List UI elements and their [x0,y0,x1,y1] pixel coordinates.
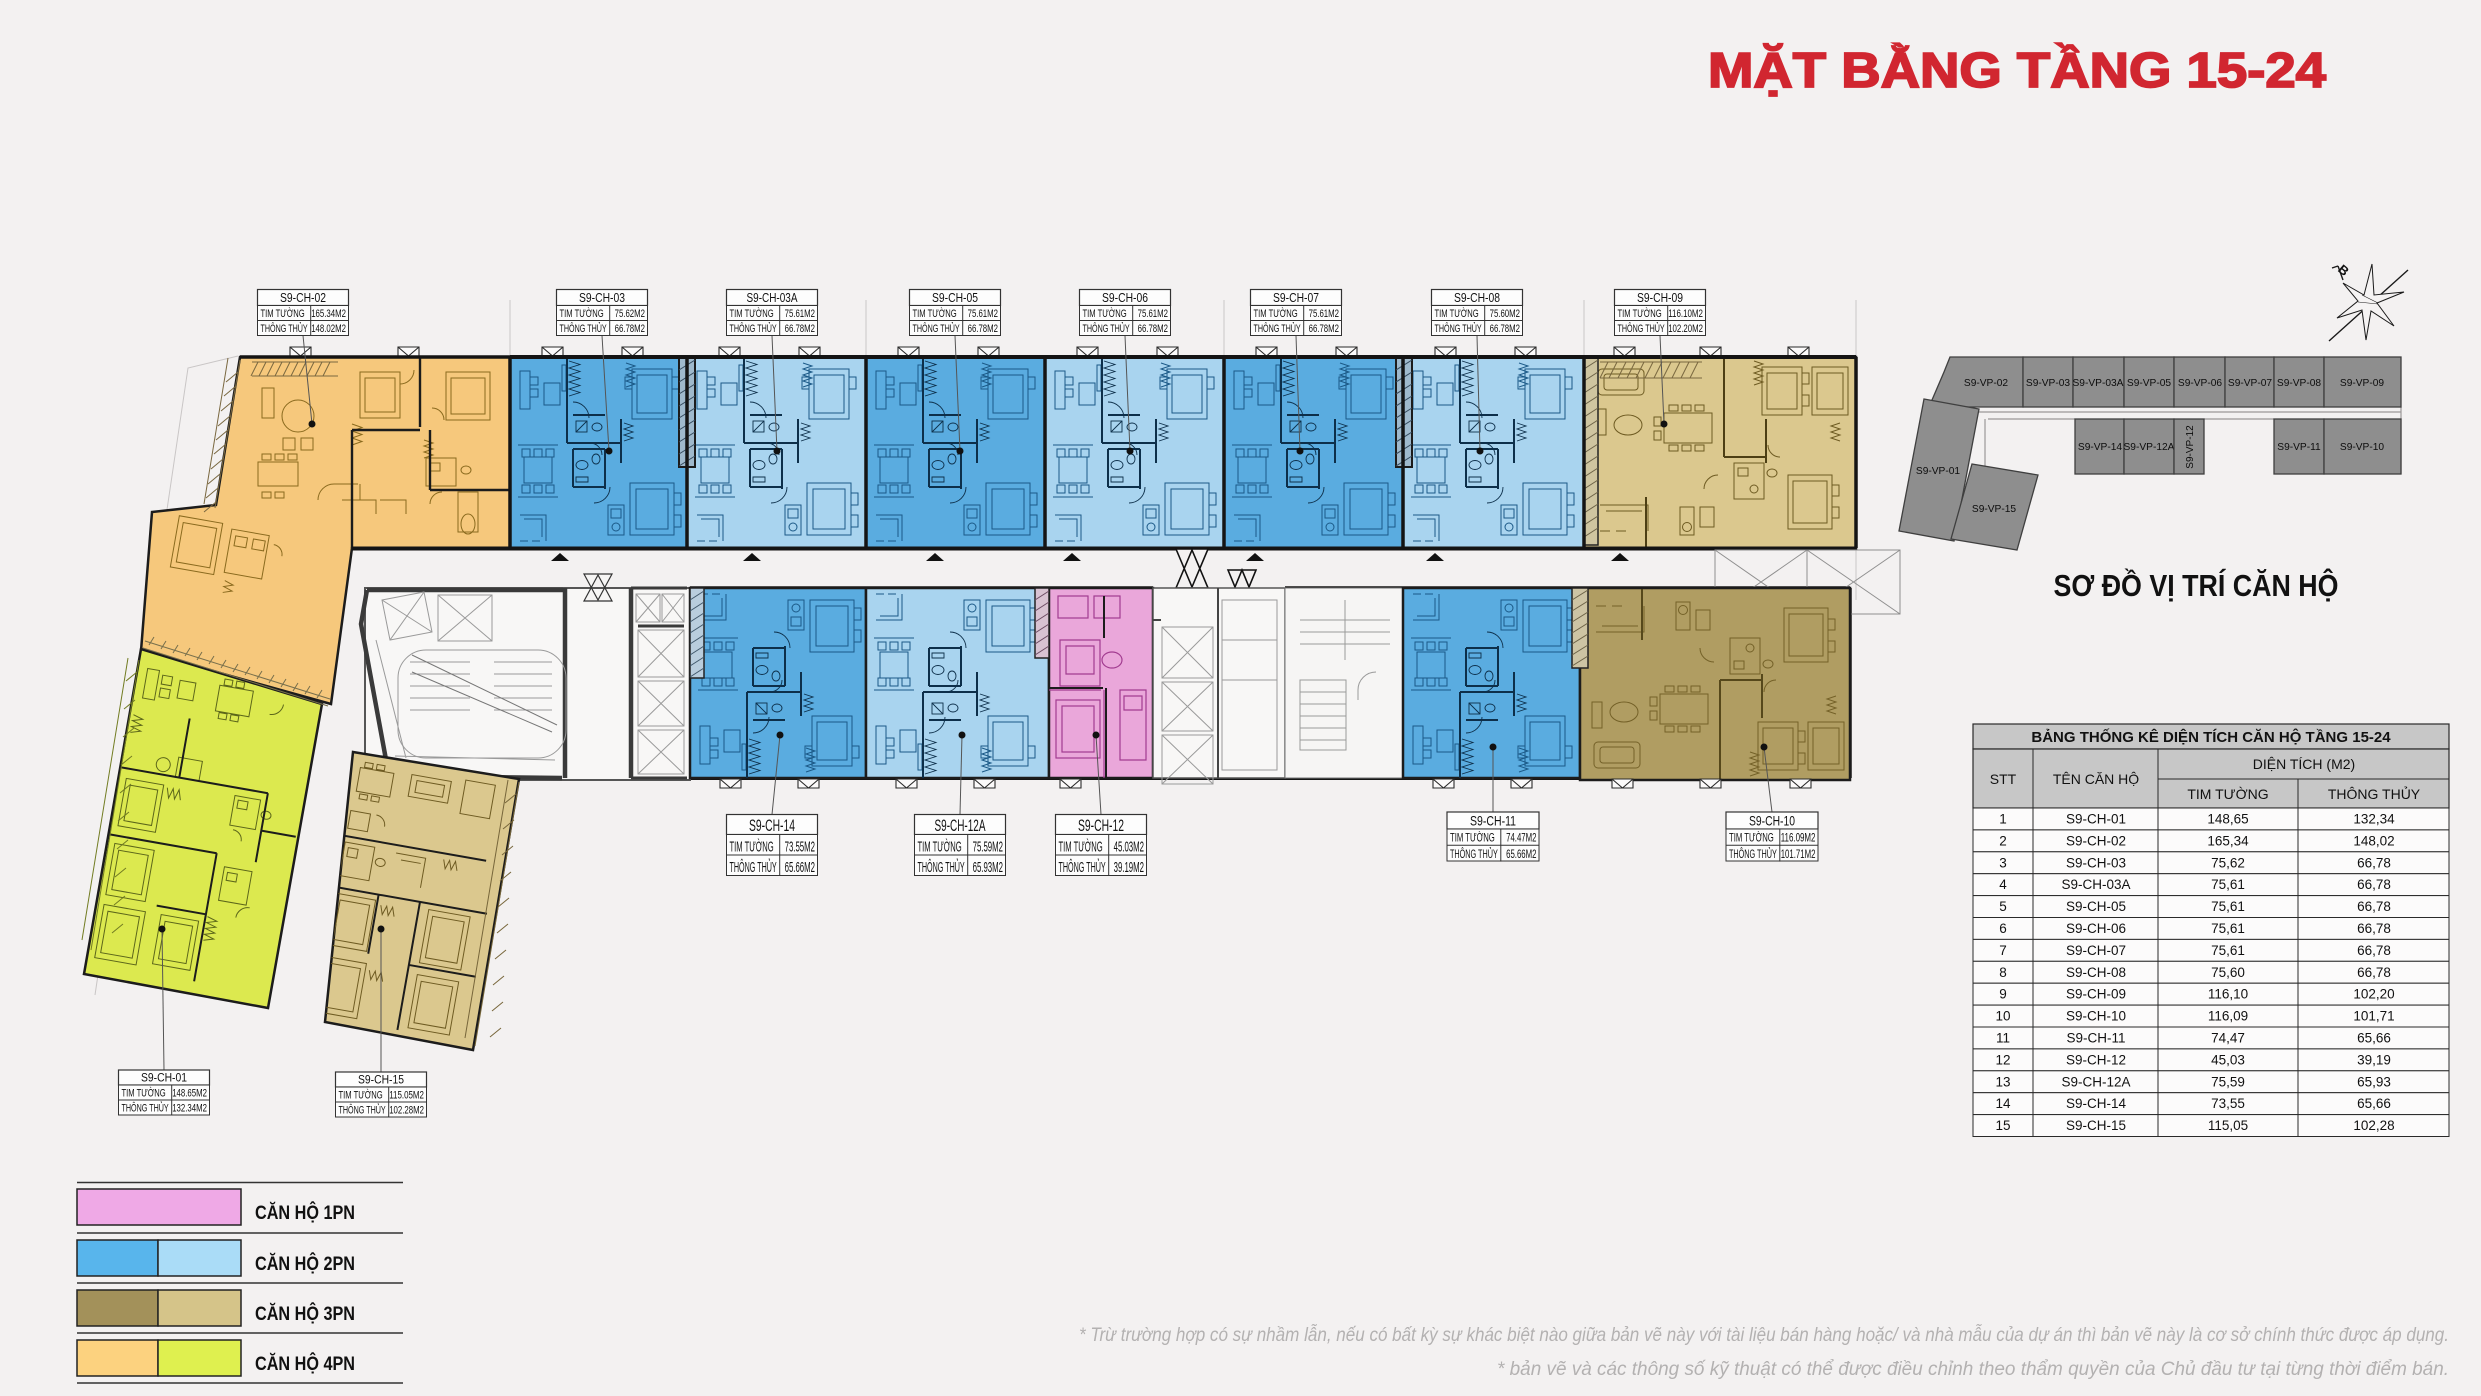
svg-text:* Trừ trường hợp có sự nhầm lẫ: * Trừ trường hợp có sự nhầm lẫn, nếu có … [1079,1325,2449,1346]
svg-text:THÔNG THỦY: THÔNG THỦY [1435,322,1482,335]
svg-text:65.93M2: 65.93M2 [973,860,1003,876]
svg-text:S9-CH-03: S9-CH-03 [579,290,625,305]
svg-text:165,34: 165,34 [2207,833,2249,848]
svg-text:THÔNG THỦY: THÔNG THỦY [2328,785,2421,802]
svg-text:75.62M2: 75.62M2 [615,308,645,320]
svg-text:S9-CH-08: S9-CH-08 [2066,965,2126,980]
svg-text:TIM TƯỜNG: TIM TƯỜNG [1450,832,1495,845]
svg-text:14: 14 [1995,1096,2011,1111]
svg-text:102,28: 102,28 [2353,1118,2394,1133]
svg-text:66,78: 66,78 [2357,855,2391,870]
svg-text:116,09: 116,09 [2208,1009,2248,1024]
svg-text:S9-CH-09: S9-CH-09 [2066,987,2126,1002]
svg-text:S9-CH-07: S9-CH-07 [2066,943,2126,958]
svg-text:TIM TƯỜNG: TIM TƯỜNG [918,838,962,855]
svg-text:S9-CH-06: S9-CH-06 [2066,921,2126,936]
svg-text:75,59: 75,59 [2211,1074,2245,1089]
svg-text:S9-VP-03A: S9-VP-03A [2073,378,2124,389]
svg-text:S9-CH-12: S9-CH-12 [1078,817,1124,835]
svg-text:115.05M2: 115.05M2 [389,1089,424,1101]
svg-text:BẢNG THỐNG KÊ DIỆN TÍCH CĂN HỘ: BẢNG THỐNG KÊ DIỆN TÍCH CĂN HỘ TẦNG 15-2… [2031,728,2391,746]
svg-text:75,61: 75,61 [2211,899,2245,914]
svg-text:S9-VP-03: S9-VP-03 [2026,378,2071,389]
svg-text:66.78M2: 66.78M2 [1490,323,1520,335]
svg-text:132.34M2: 132.34M2 [172,1102,207,1114]
svg-text:12: 12 [1995,1052,2010,1067]
svg-text:TIM TƯỜNG: TIM TƯỜNG [730,307,774,320]
svg-text:116.10M2: 116.10M2 [1668,308,1703,320]
svg-text:S9-VP-12: S9-VP-12 [2185,425,2196,469]
svg-text:S9-CH-15: S9-CH-15 [2066,1118,2126,1133]
svg-text:TIM TƯỜNG: TIM TƯỜNG [2187,786,2268,802]
svg-text:165.34M2: 165.34M2 [311,308,346,320]
svg-text:11: 11 [1996,1031,2010,1046]
svg-text:S9-CH-10: S9-CH-10 [2066,1009,2126,1024]
svg-text:S9-CH-15: S9-CH-15 [358,1073,404,1087]
svg-text:132,34: 132,34 [2353,812,2395,827]
svg-text:S9-VP-12A: S9-VP-12A [2124,442,2175,453]
svg-text:THÔNG THỦY: THÔNG THỦY [1729,848,1777,861]
svg-text:THÔNG THỦY: THÔNG THỦY [261,322,308,335]
svg-text:S9-VP-08: S9-VP-08 [2277,378,2322,389]
svg-text:S9-CH-02: S9-CH-02 [280,290,326,305]
svg-text:148.02M2: 148.02M2 [311,323,346,335]
svg-text:116,10: 116,10 [2208,987,2248,1002]
svg-text:66.78M2: 66.78M2 [785,323,815,335]
svg-text:THÔNG THỦY: THÔNG THỦY [1618,322,1665,335]
svg-text:66,78: 66,78 [2357,965,2391,980]
svg-text:S9-CH-02: S9-CH-02 [2066,833,2126,848]
svg-text:102.20M2: 102.20M2 [1668,323,1703,335]
svg-text:THÔNG THỦY: THÔNG THỦY [1059,858,1106,876]
svg-text:9: 9 [1999,987,2007,1002]
svg-text:75.59M2: 75.59M2 [973,839,1003,855]
svg-text:TIM TƯỜNG: TIM TƯỜNG [261,307,305,320]
svg-text:S9-CH-11: S9-CH-11 [2066,1031,2125,1046]
svg-text:102.28M2: 102.28M2 [389,1104,424,1116]
svg-text:S9-VP-07: S9-VP-07 [2228,378,2273,389]
svg-text:66.78M2: 66.78M2 [615,323,645,335]
svg-text:S9-VP-11: S9-VP-11 [2277,442,2321,453]
svg-text:75,61: 75,61 [2211,921,2245,936]
svg-text:101.71M2: 101.71M2 [1781,848,1816,861]
svg-text:75,60: 75,60 [2211,965,2245,980]
svg-text:CĂN HỘ 1PN: CĂN HỘ 1PN [255,1200,355,1224]
svg-text:S9-CH-06: S9-CH-06 [1102,290,1148,305]
svg-text:THÔNG THỦY: THÔNG THỦY [560,322,607,335]
svg-text:CĂN HỘ 4PN: CĂN HỘ 4PN [255,1351,355,1375]
svg-text:* bản vẽ và các thông số kỹ th: * bản vẽ và các thông số kỹ thuật có thể… [1497,1359,2449,1380]
svg-text:S9-CH-14: S9-CH-14 [749,817,795,835]
svg-text:CĂN HỘ 2PN: CĂN HỘ 2PN [255,1251,355,1275]
svg-text:S9-VP-14: S9-VP-14 [2078,442,2123,453]
svg-text:75.60M2: 75.60M2 [1490,308,1520,320]
svg-text:75,61: 75,61 [2211,877,2245,892]
svg-text:73.55M2: 73.55M2 [785,839,815,855]
svg-text:148,65: 148,65 [2207,812,2248,827]
svg-text:S9-VP-02: S9-VP-02 [1964,378,2009,389]
svg-text:7: 7 [1999,943,2007,958]
svg-text:S9-CH-10: S9-CH-10 [1749,814,1795,829]
svg-text:66.78M2: 66.78M2 [968,323,998,335]
svg-text:74,47: 74,47 [2211,1031,2245,1046]
svg-text:THÔNG THỦY: THÔNG THỦY [339,1103,386,1116]
svg-text:75,61: 75,61 [2211,943,2245,958]
svg-text:TIM TƯỜNG: TIM TƯỜNG [1729,832,1774,845]
svg-text:S9-VP-09: S9-VP-09 [2340,378,2385,389]
svg-text:S9-CH-01: S9-CH-01 [141,1071,187,1085]
svg-text:66,78: 66,78 [2357,943,2391,958]
svg-text:66,78: 66,78 [2357,877,2391,892]
svg-text:1: 1 [1999,812,2007,827]
svg-text:THÔNG THỦY: THÔNG THỦY [730,322,777,335]
svg-text:65.66M2: 65.66M2 [785,860,815,876]
svg-text:4: 4 [1999,877,2007,892]
svg-text:65,93: 65,93 [2357,1074,2391,1089]
svg-text:S9-CH-05: S9-CH-05 [932,290,978,305]
svg-text:S9-VP-06: S9-VP-06 [2178,378,2223,389]
svg-text:S9-CH-12: S9-CH-12 [2066,1052,2126,1067]
svg-text:MẶT BẰNG TẦNG 15-24: MẶT BẰNG TẦNG 15-24 [1708,42,2327,98]
svg-text:65,66: 65,66 [2357,1096,2391,1111]
svg-text:101,71: 101,71 [2353,1009,2394,1024]
svg-text:TIM TƯỜNG: TIM TƯỜNG [339,1088,383,1101]
svg-text:S9-CH-03: S9-CH-03 [2066,855,2126,870]
svg-text:3: 3 [1999,855,2007,870]
svg-text:TIM TƯỜNG: TIM TƯỜNG [1254,307,1298,320]
svg-text:75.61M2: 75.61M2 [785,308,815,320]
svg-text:65,66: 65,66 [2357,1031,2391,1046]
svg-text:TIM TƯỜNG: TIM TƯỜNG [1435,307,1479,320]
svg-text:S9-CH-08: S9-CH-08 [1454,290,1500,305]
svg-text:2: 2 [1999,833,2007,848]
svg-text:8: 8 [1999,965,2007,980]
svg-text:S9-CH-03A: S9-CH-03A [2061,877,2130,892]
svg-text:TIM TƯỜNG: TIM TƯỜNG [1618,307,1662,320]
svg-text:39,19: 39,19 [2357,1052,2391,1067]
svg-text:TIM TƯỜNG: TIM TƯỜNG [560,307,604,320]
svg-text:102,20: 102,20 [2353,987,2394,1002]
svg-text:74.47M2: 74.47M2 [1506,832,1536,845]
svg-text:S9-CH-01: S9-CH-01 [2066,812,2126,827]
svg-text:THÔNG THỦY: THÔNG THỦY [1254,322,1301,335]
svg-text:TIM TƯỜNG: TIM TƯỜNG [730,838,774,855]
svg-text:148,02: 148,02 [2353,833,2394,848]
svg-text:S9-VP-01: S9-VP-01 [1916,466,1961,477]
svg-text:THÔNG THỦY: THÔNG THỦY [913,322,960,335]
svg-text:S9-CH-12A: S9-CH-12A [2061,1074,2130,1089]
svg-text:CĂN HỘ 3PN: CĂN HỘ 3PN [255,1301,355,1325]
svg-text:116.09M2: 116.09M2 [1781,832,1816,845]
svg-text:5: 5 [1999,899,2007,914]
svg-text:10: 10 [1995,1009,2010,1024]
svg-text:S9-VP-10: S9-VP-10 [2340,442,2385,453]
svg-text:45,03: 45,03 [2211,1052,2245,1067]
svg-text:S9-CH-12A: S9-CH-12A [935,817,986,835]
svg-text:65.66M2: 65.66M2 [1506,848,1536,861]
svg-text:66,78: 66,78 [2357,899,2391,914]
svg-text:6: 6 [1999,921,2007,936]
svg-text:66.78M2: 66.78M2 [1309,323,1339,335]
svg-text:45.03M2: 45.03M2 [1114,839,1144,855]
svg-text:115,05: 115,05 [2208,1118,2248,1133]
svg-text:15: 15 [1995,1118,2010,1133]
svg-text:148.65M2: 148.65M2 [172,1087,207,1099]
svg-text:66.78M2: 66.78M2 [1138,323,1168,335]
svg-text:75,62: 75,62 [2211,855,2245,870]
svg-text:THÔNG THỦY: THÔNG THỦY [1083,322,1130,335]
svg-text:THÔNG THỦY: THÔNG THỦY [1450,848,1498,861]
svg-text:TIM TƯỜNG: TIM TƯỜNG [913,307,957,320]
svg-text:66,78: 66,78 [2357,921,2391,936]
svg-text:75.61M2: 75.61M2 [1138,308,1168,320]
svg-text:73,55: 73,55 [2211,1096,2245,1111]
svg-text:STT: STT [1990,771,2017,787]
svg-text:75.61M2: 75.61M2 [1309,308,1339,320]
svg-text:S9-CH-14: S9-CH-14 [2066,1096,2127,1111]
svg-text:TIM TƯỜNG: TIM TƯỜNG [1059,838,1103,855]
svg-text:THÔNG THỦY: THÔNG THỦY [122,1101,169,1114]
svg-text:75.61M2: 75.61M2 [968,308,998,320]
svg-text:TIM TƯỜNG: TIM TƯỜNG [122,1086,166,1099]
svg-text:DIỆN TÍCH (M2): DIỆN TÍCH (M2) [2253,756,2355,772]
svg-text:13: 13 [1995,1074,2010,1089]
svg-text:S9-VP-15: S9-VP-15 [1972,504,2017,515]
svg-text:S9-CH-07: S9-CH-07 [1273,290,1319,305]
svg-text:TIM TƯỜNG: TIM TƯỜNG [1083,307,1127,320]
svg-text:39.19M2: 39.19M2 [1114,860,1144,876]
svg-text:S9-CH-11: S9-CH-11 [1470,814,1516,829]
svg-text:TÊN CĂN HỘ: TÊN CĂN HỘ [2053,771,2139,787]
svg-text:THÔNG THỦY: THÔNG THỦY [730,858,777,876]
svg-text:S9-VP-05: S9-VP-05 [2127,378,2172,389]
svg-text:S9-CH-09: S9-CH-09 [1637,290,1683,305]
svg-text:S9-CH-03A: S9-CH-03A [747,290,798,305]
svg-text:S9-CH-05: S9-CH-05 [2066,899,2126,914]
svg-text:SƠ ĐỒ VỊ TRÍ CĂN HỘ: SƠ ĐỒ VỊ TRÍ CĂN HỘ [2054,567,2339,603]
svg-text:THÔNG THỦY: THÔNG THỦY [918,858,965,876]
